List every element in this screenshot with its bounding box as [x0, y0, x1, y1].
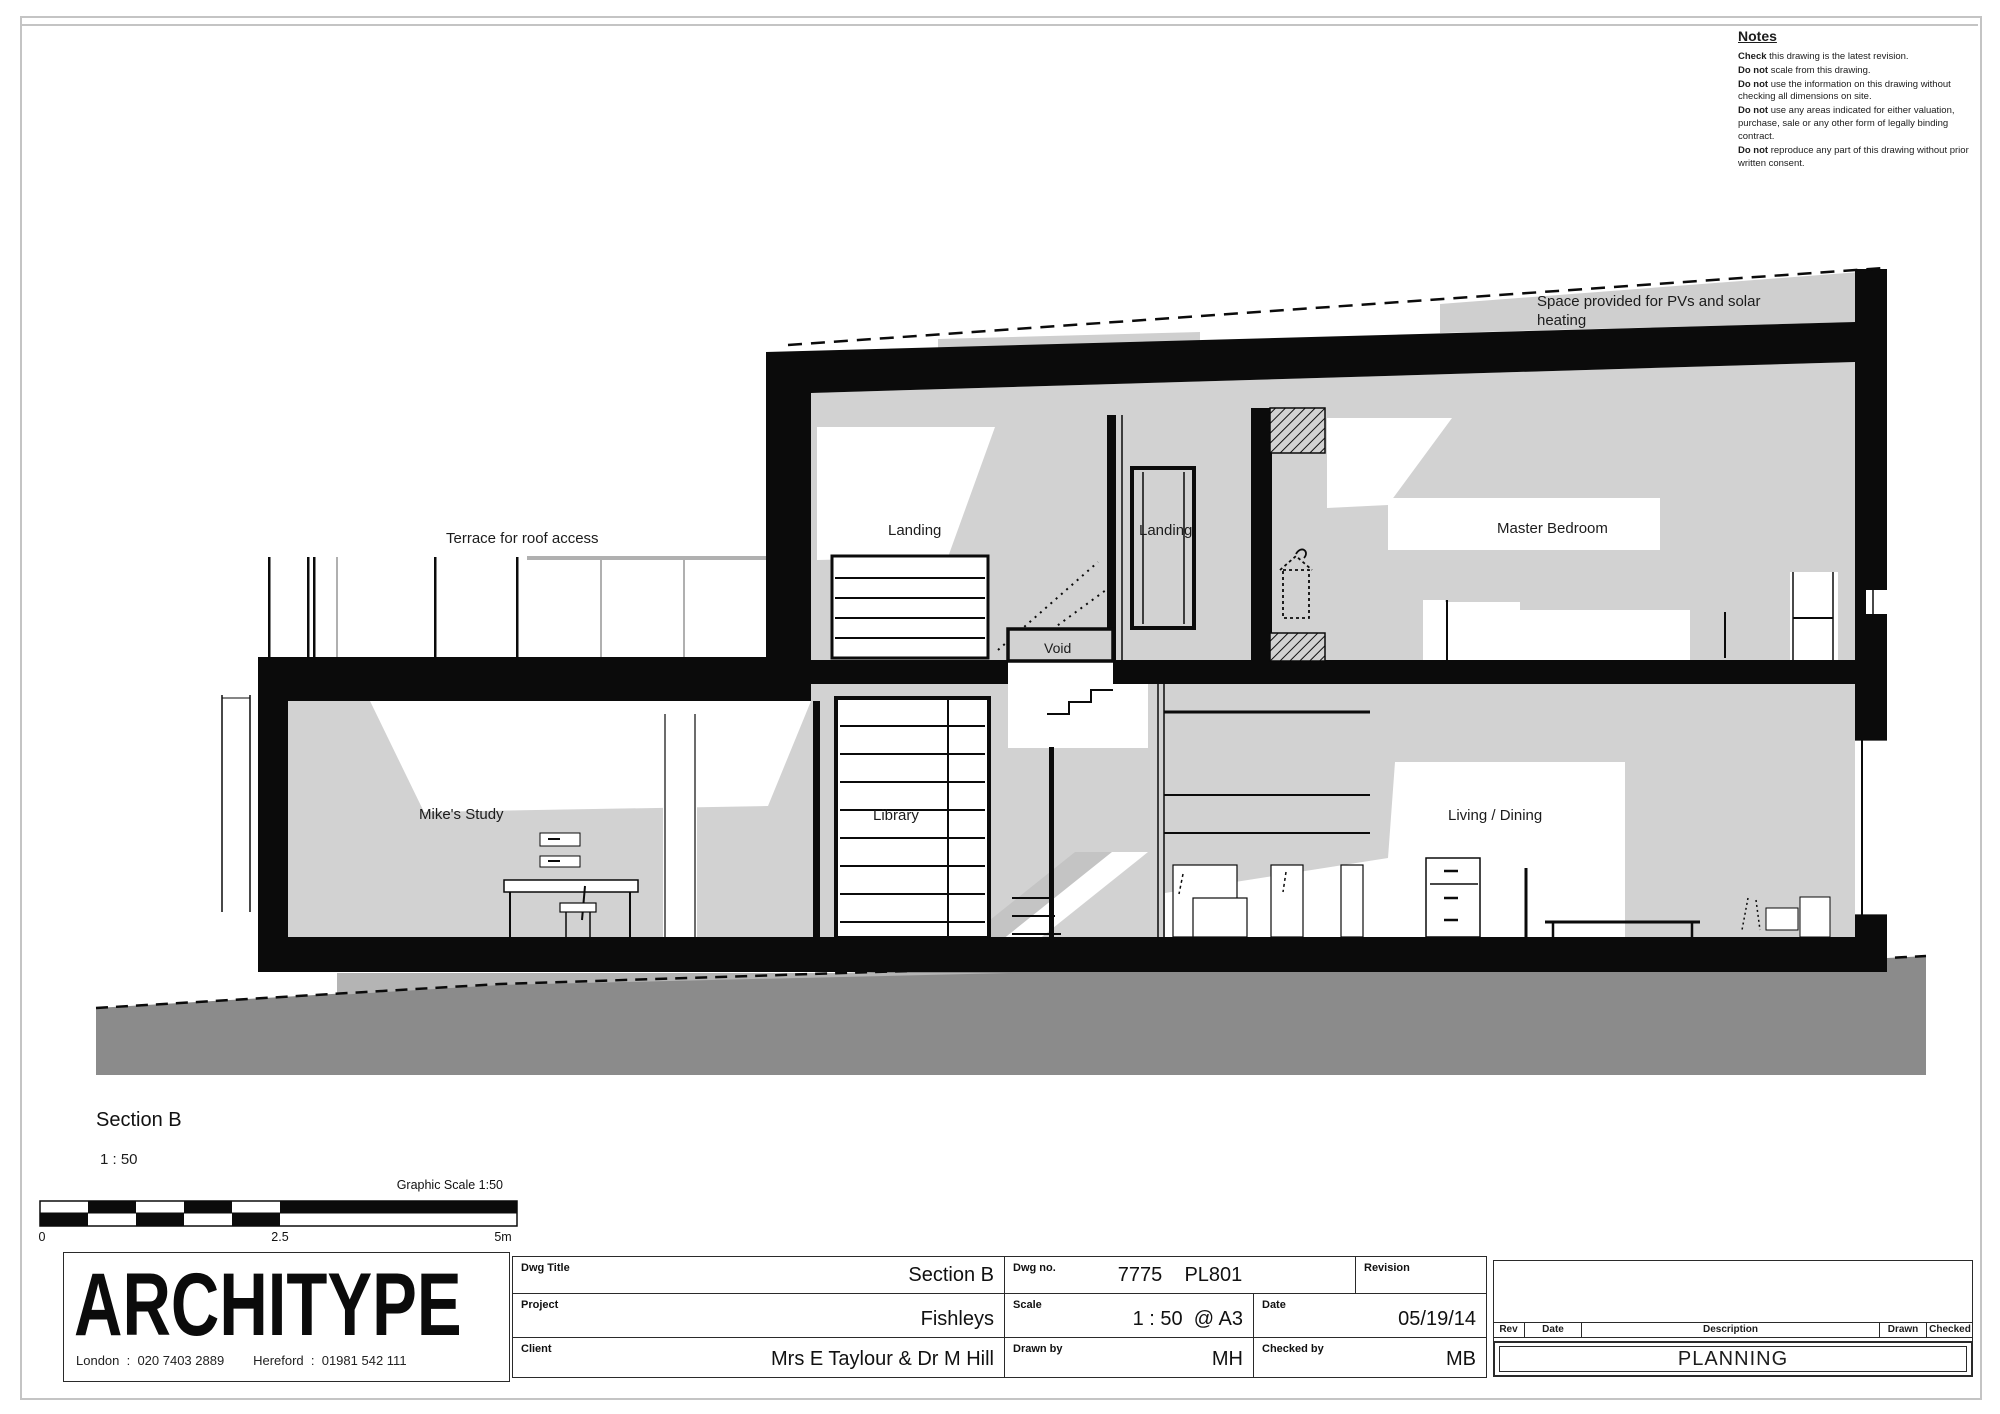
label-mikes-study: Mike's Study: [419, 806, 504, 823]
revision-cell: Revision: [1355, 1256, 1487, 1294]
dwg-no-cell: Dwg no. 7775 PL801: [1004, 1256, 1356, 1294]
section-title: Section B: [96, 1109, 182, 1131]
notes-title: Notes: [1738, 28, 1978, 44]
chimney-wall: [1251, 408, 1272, 662]
revision-table-header: Rev Date Description Drawn Checked: [1493, 1322, 1973, 1338]
rev-col-checked: Checked: [1927, 1323, 1973, 1337]
dwg-title-value: Section B: [908, 1264, 994, 1287]
label-pv-line1: Space provided for PVs and solar: [1537, 293, 1760, 310]
rev-col-drawn: Drawn: [1880, 1323, 1927, 1337]
note-item: Do not reproduce any part of this drawin…: [1738, 145, 1978, 171]
note-item: Check this drawing is the latest revisio…: [1738, 51, 1978, 64]
dwg-title-cell: Dwg Title Section B: [512, 1256, 1005, 1294]
scale-tick-0: 0: [39, 1230, 46, 1244]
note-item: Do not scale from this drawing.: [1738, 65, 1978, 78]
right-wall-window: [1855, 740, 1887, 915]
project-value: Fishleys: [921, 1308, 994, 1331]
terrace-slab: [258, 657, 811, 701]
label-pv-line2: heating: [1537, 312, 1586, 329]
rev-col-description: Description: [1582, 1323, 1880, 1337]
checked-by-label: Checked by: [1262, 1343, 1324, 1355]
date-value: 05/19/14: [1398, 1308, 1476, 1331]
exterior-downpipe: [222, 695, 250, 912]
section-scale: 1 : 50: [100, 1151, 138, 1168]
drawn-by-value: MH: [1212, 1348, 1243, 1371]
client-label: Client: [521, 1343, 552, 1355]
label-terrace: Terrace for roof access: [446, 530, 599, 547]
landing-shelf-unit: [832, 556, 988, 658]
label-landing-left: Landing: [888, 522, 941, 539]
living-sideboard: [1426, 858, 1480, 937]
client-cell: Client Mrs E Taylour & Dr M Hill: [512, 1337, 1005, 1378]
drawn-by-label: Drawn by: [1013, 1343, 1063, 1355]
scale-label: Scale: [1013, 1299, 1042, 1311]
dwg-title-label: Dwg Title: [521, 1262, 570, 1274]
architype-logo: ARCHITYPE: [74, 1253, 462, 1357]
hatched-wall-lower: [1270, 633, 1325, 661]
scale-bar: [40, 1201, 517, 1226]
date-label: Date: [1262, 1299, 1286, 1311]
terrace-railing: [268, 556, 766, 657]
revision-label: Revision: [1364, 1262, 1410, 1274]
first-floor-slab: [811, 660, 1855, 684]
date-cell: Date 05/19/14: [1253, 1293, 1487, 1338]
note-item: Do not use any areas indicated for eithe…: [1738, 105, 1978, 143]
drawn-by-cell: Drawn by MH: [1004, 1337, 1254, 1378]
scale-cell: Scale 1 : 50 @ A3: [1004, 1293, 1254, 1338]
rev-col-date: Date: [1525, 1323, 1582, 1337]
label-living-dining: Living / Dining: [1448, 807, 1542, 824]
graphic-scale-label: Graphic Scale 1:50: [397, 1178, 503, 1192]
scale-tick-5m: 5m: [494, 1230, 511, 1244]
stairwell-void-gap: [1008, 660, 1113, 684]
landing-partition: [1107, 415, 1116, 662]
study-right-wall: [813, 701, 820, 937]
scale-value: 1 : 50 @ A3: [1133, 1308, 1243, 1331]
client-value: Mrs E Taylour & Dr M Hill: [771, 1348, 994, 1371]
notes-block: Notes Check this drawing is the latest r…: [1738, 28, 1978, 171]
project-label: Project: [521, 1299, 558, 1311]
label-void: Void: [1044, 640, 1071, 656]
main-left-wall: [766, 352, 811, 701]
right-wall-upper-window: [1866, 590, 1887, 614]
study-door: [663, 714, 697, 937]
architype-logo-box: ARCHITYPE London : 020 7403 2889 Herefor…: [63, 1252, 510, 1382]
ground-floor-slab: [258, 937, 1887, 972]
checked-by-cell: Checked by MB: [1253, 1337, 1487, 1378]
project-cell: Project Fishleys: [512, 1293, 1005, 1338]
ground-mass: [96, 956, 1926, 1075]
label-landing-right: Landing: [1139, 522, 1192, 539]
stair-newel: [1049, 747, 1054, 940]
hatched-wall-upper: [1270, 408, 1325, 453]
study-left-wall: [258, 657, 288, 970]
planning-banner: PLANNING: [1499, 1346, 1967, 1372]
firm-contacts: London : 020 7403 2889 Hereford : 01981 …: [76, 1353, 407, 1368]
rev-col-rev: Rev: [1493, 1323, 1525, 1337]
note-item: Do not use the information on this drawi…: [1738, 79, 1978, 105]
right-wall: [1855, 269, 1887, 740]
label-master-bedroom: Master Bedroom: [1497, 520, 1608, 537]
dwg-no-value: 7775 PL801: [1005, 1264, 1355, 1287]
scale-tick-2-5: 2.5: [271, 1230, 288, 1244]
label-library: Library: [873, 807, 919, 824]
planning-banner-box: PLANNING: [1493, 1341, 1973, 1377]
bedroom-wardrobe: [1790, 572, 1838, 660]
checked-by-value: MB: [1446, 1348, 1476, 1371]
section-drawing: Terrace for roof access Space provided f…: [0, 0, 2000, 1414]
